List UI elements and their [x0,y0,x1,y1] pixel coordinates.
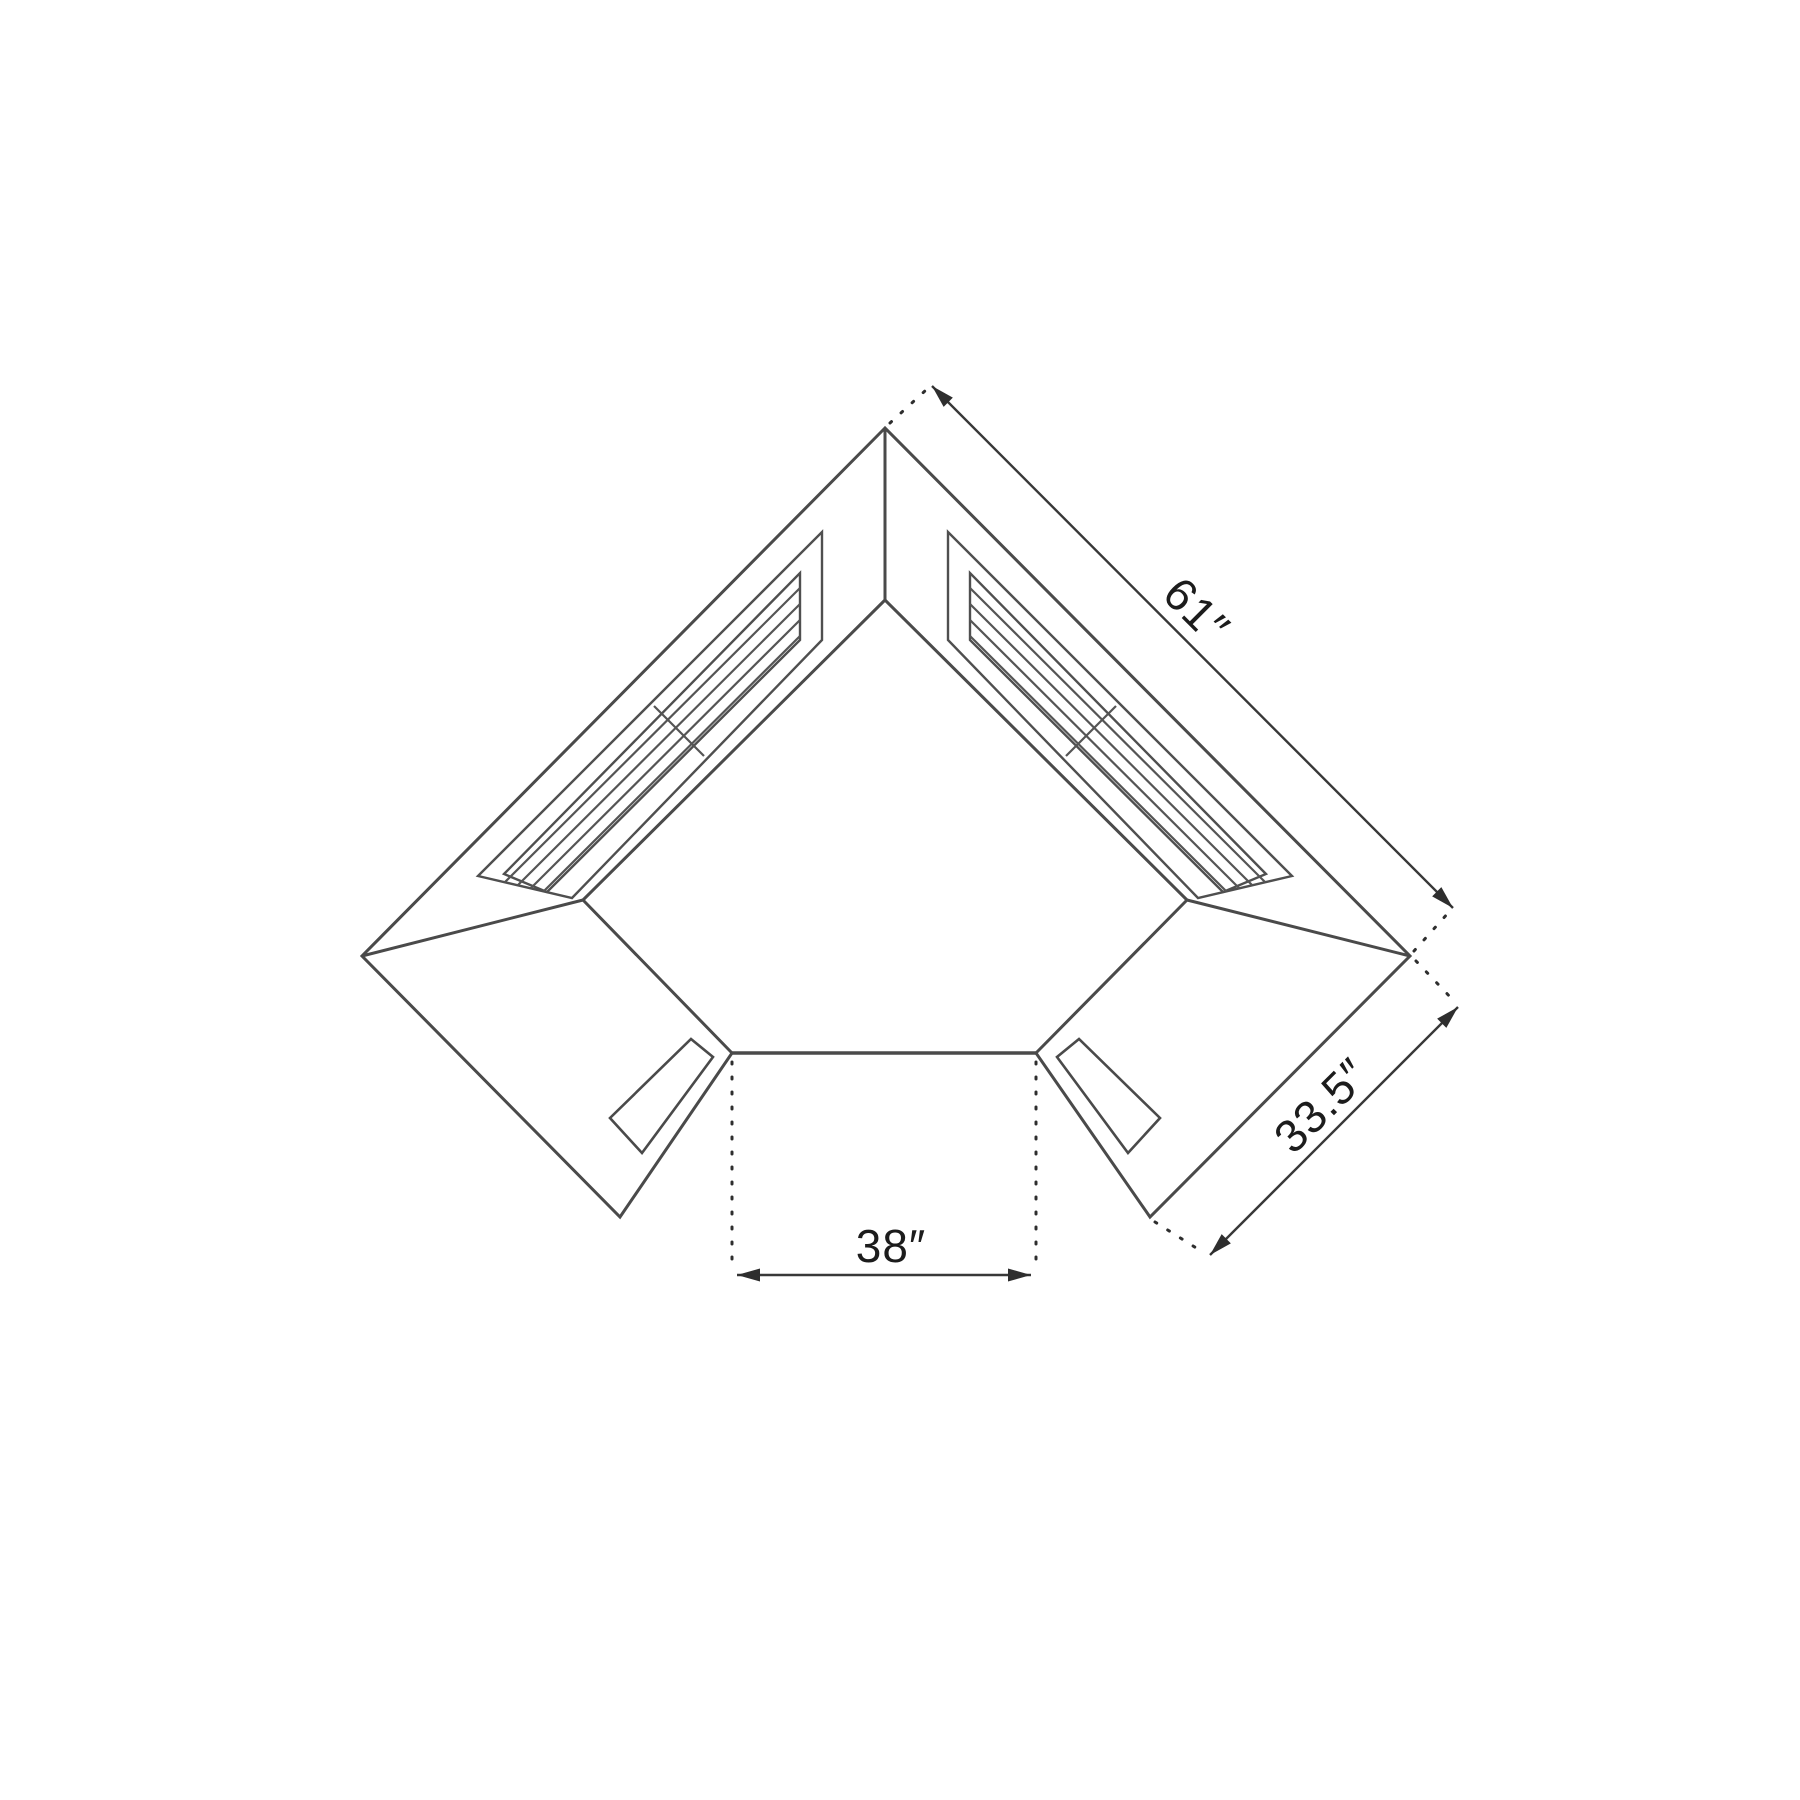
right-bench-louver-line [970,620,1239,888]
right-bench-middle-seam-tick [1066,706,1116,756]
dimension-38-label: 38″ [856,1220,926,1272]
left-door-vent [610,1039,713,1153]
dimension-61-line [932,386,1453,908]
sauna-floorplan-diagram: 61″ 33.5″ 38″ [0,0,1800,1800]
left-bench-middle-seam-tick [654,706,704,756]
dimension-38: 38″ [732,1062,1036,1275]
dimension-33-5-line [1210,1007,1458,1255]
lower-left-inner-face-line [583,900,732,1053]
left-bench-louver-line [505,588,800,882]
door-vents [610,1039,1160,1153]
dimension-61-label: 61″ [1153,567,1240,654]
dimension-33-5-extension-lower-tip [1155,1222,1201,1251]
dimension-33-5-extension-right-corner [1416,961,1453,1000]
right-door-vent [1057,1039,1160,1153]
right-corner-seam-line [1187,900,1410,956]
rear-left-inner-face-line [583,600,885,900]
sauna-outline [362,428,1410,1217]
dimension-61-extension-apex [890,390,926,423]
lower-right-inner-face-line [1036,900,1187,1053]
right-bench-louver-line [970,636,1226,891]
left-bench-louver-line [544,636,800,891]
left-bench-louver-line [531,620,800,888]
dimension-33-5: 33.5″ [1155,961,1458,1255]
left-corner-seam-line [362,900,583,956]
dimension-33-5-label: 33.5″ [1264,1048,1379,1163]
dimension-61-extension-right-corner [1414,912,1449,951]
rear-right-inner-face-line [885,600,1187,900]
left-bench-inner-frame [504,573,800,892]
diagram-canvas: 61″ 33.5″ 38″ [0,0,1800,1800]
left-bench-louver-line [518,604,800,885]
